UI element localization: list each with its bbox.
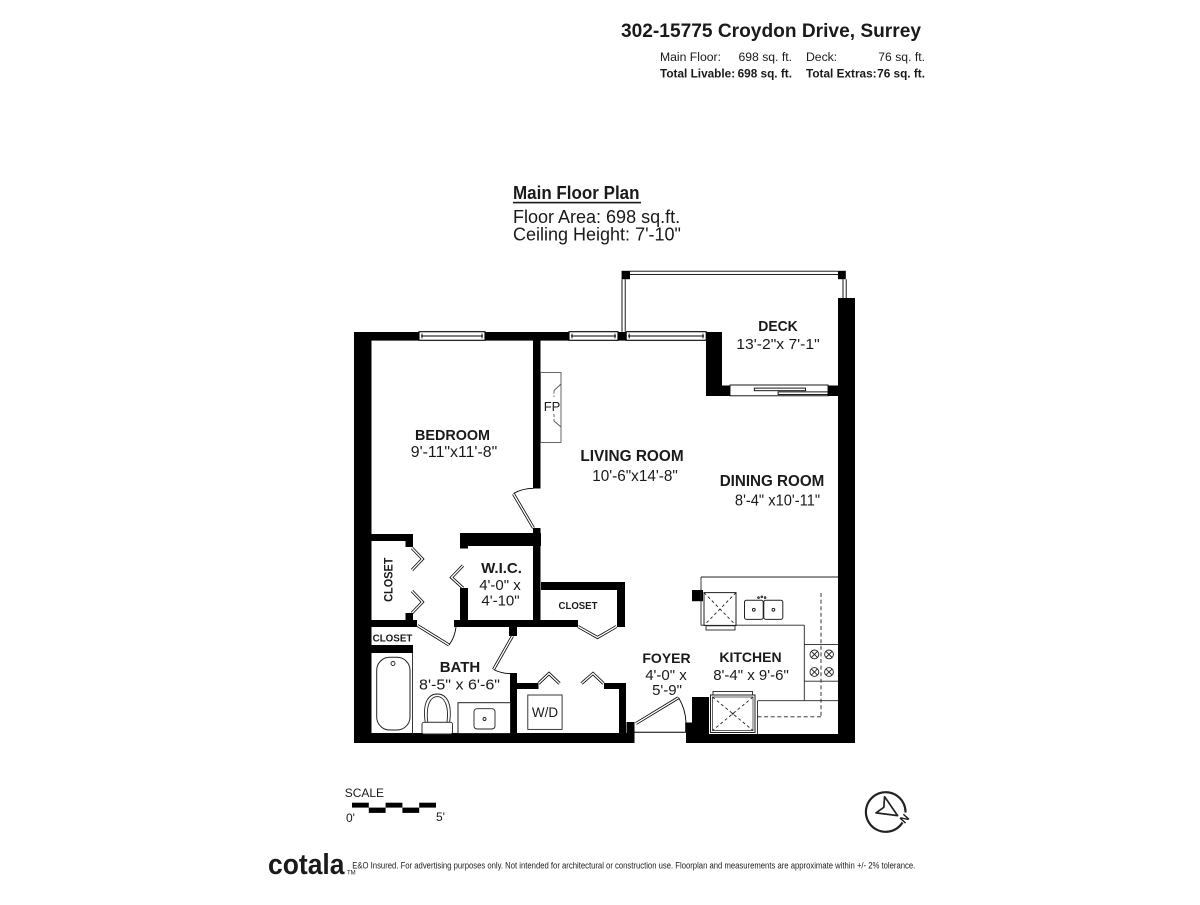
svg-text:698 sq. ft.: 698 sq. ft.: [738, 67, 792, 81]
svg-text:8'-5" x 6'-6": 8'-5" x 6'-6": [419, 677, 500, 694]
svg-text:FOYER: FOYER: [642, 650, 690, 666]
svg-text:DECK: DECK: [758, 318, 798, 335]
svg-text:BATH: BATH: [440, 659, 481, 676]
svg-text:698 sq. ft.: 698 sq. ft.: [738, 50, 792, 64]
svg-text:CLOSET: CLOSET: [559, 600, 598, 612]
svg-text:CLOSET: CLOSET: [384, 558, 396, 602]
svg-text:10'-6"x14'-8": 10'-6"x14'-8": [592, 468, 678, 485]
svg-text:0': 0': [346, 811, 355, 825]
svg-text:4'-0" x: 4'-0" x: [479, 577, 521, 594]
svg-text:KITCHEN: KITCHEN: [719, 649, 781, 665]
svg-text:BEDROOM: BEDROOM: [415, 427, 490, 444]
svg-text:9'-11"x11'-8": 9'-11"x11'-8": [411, 444, 497, 461]
svg-text:302-15775 Croydon Drive, Surre: 302-15775 Croydon Drive, Surrey: [621, 20, 921, 42]
svg-text:W/D: W/D: [532, 705, 558, 720]
svg-text:LIVING ROOM: LIVING ROOM: [580, 448, 683, 465]
svg-text:13'-2"x 7'-1": 13'-2"x 7'-1": [736, 336, 819, 353]
svg-text:DINING ROOM: DINING ROOM: [720, 473, 825, 490]
svg-text:Ceiling Height: 7'-10": Ceiling Height: 7'-10": [513, 225, 681, 245]
svg-text:E&O Insured. For advertising p: E&O Insured. For advertising purposes on…: [352, 861, 915, 871]
svg-text:76 sq. ft.: 76 sq. ft.: [878, 50, 925, 64]
svg-text:Total Livable:: Total Livable:: [660, 67, 735, 81]
svg-text:CLOSET: CLOSET: [373, 633, 413, 645]
svg-text:FP: FP: [544, 399, 561, 414]
svg-text:TM: TM: [347, 871, 356, 877]
svg-text:Main Floor Plan: Main Floor Plan: [513, 183, 640, 203]
svg-text:5': 5': [436, 810, 445, 824]
svg-text:Main Floor:: Main Floor:: [660, 50, 721, 64]
svg-text:Total Extras:: Total Extras:: [806, 67, 877, 81]
svg-text:5'-9": 5'-9": [652, 682, 682, 699]
svg-text:Deck:: Deck:: [806, 50, 837, 64]
svg-text:W.I.C.: W.I.C.: [481, 560, 522, 577]
svg-text:cotala: cotala: [268, 849, 345, 881]
svg-text:8'-4" x 9'-6": 8'-4" x 9'-6": [713, 667, 789, 684]
svg-text:8'-4" x10'-11": 8'-4" x10'-11": [735, 493, 820, 510]
svg-text:76 sq. ft.: 76 sq. ft.: [877, 67, 925, 81]
svg-text:SCALE: SCALE: [345, 786, 384, 800]
svg-text:N: N: [898, 812, 912, 826]
svg-text:4'-10": 4'-10": [481, 593, 519, 610]
